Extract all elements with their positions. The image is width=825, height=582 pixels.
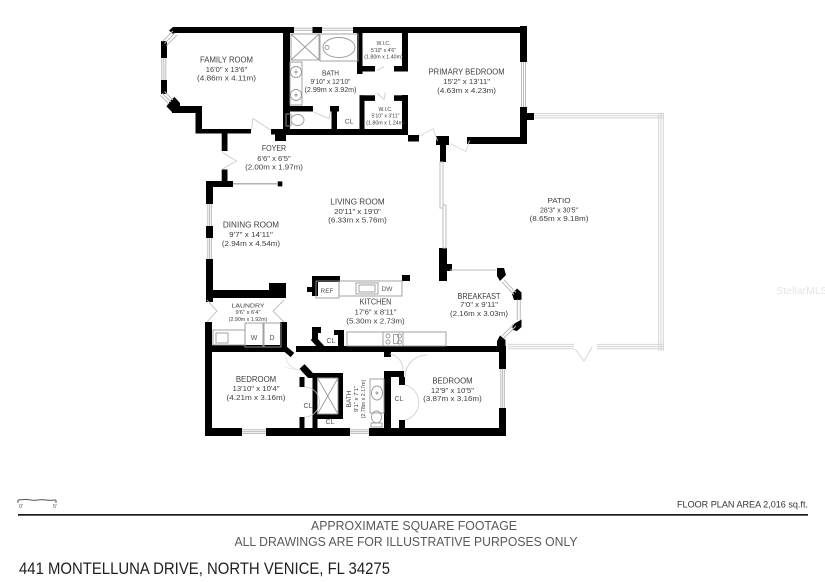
svg-text:CL: CL [395,396,404,403]
svg-text:7'0" x 9'11": 7'0" x 9'11" [460,300,498,309]
svg-text:9'1" x 7'1": 9'1" x 7'1" [354,386,360,412]
svg-text:APPROXIMATE SQUARE FOOTAGE: APPROXIMATE SQUARE FOOTAGE [311,519,517,533]
svg-text:W.I.C.: W.I.C. [377,41,391,47]
svg-text:KITCHEN: KITCHEN [360,296,392,306]
svg-text:DINING ROOM: DINING ROOM [223,219,279,229]
svg-text:LAUNDRY: LAUNDRY [232,304,265,310]
svg-text:REF: REF [321,288,334,295]
svg-text:FAMILY ROOM: FAMILY ROOM [200,55,253,65]
svg-text:BEDROOM: BEDROOM [236,374,276,384]
svg-text:(1.80m x 1.24m): (1.80m x 1.24m) [366,121,405,127]
svg-text:5'10" x 4'6": 5'10" x 4'6" [371,48,396,54]
svg-text:(2.16m x 3.03m): (2.16m x 3.03m) [450,309,508,318]
svg-text:FLOOR PLAN AREA 2,016 sq.ft.: FLOOR PLAN AREA 2,016 sq.ft. [677,500,808,510]
svg-text:CL: CL [304,403,313,410]
svg-text:16'0" x 13'6": 16'0" x 13'6" [206,65,248,74]
svg-text:(1.80m x 1.40m): (1.80m x 1.40m) [364,55,403,61]
svg-text:CL: CL [326,419,335,426]
svg-text:20'11" x 19'0": 20'11" x 19'0" [334,207,381,216]
svg-text:LIVING ROOM: LIVING ROOM [330,197,384,207]
svg-text:DW: DW [382,286,394,293]
svg-text:17'6" x 8'11": 17'6" x 8'11" [355,308,397,317]
svg-text:CL: CL [327,338,336,345]
svg-text:9'7" x 14'11": 9'7" x 14'11" [229,230,273,239]
svg-text:(2.90m x 1.92m): (2.90m x 1.92m) [229,317,268,323]
svg-text:(4.21m x 3.16m): (4.21m x 3.16m) [227,393,286,402]
svg-text:W.I.C.: W.I.C. [379,107,393,113]
svg-text:13'10" x 10'4": 13'10" x 10'4" [233,384,280,393]
svg-text:W: W [251,335,258,342]
svg-text:28'3" x 30'5": 28'3" x 30'5" [540,208,579,215]
svg-text:D: D [269,335,274,342]
svg-text:FOYER: FOYER [262,143,286,153]
svg-text:(4.86m x 4.11m): (4.86m x 4.11m) [197,74,256,83]
svg-text:(8.65m x 9.18m): (8.65m x 9.18m) [530,216,589,223]
svg-text:(2.99m x 3.92m): (2.99m x 3.92m) [305,85,357,94]
svg-text:PATIO: PATIO [548,196,571,205]
svg-text:BATH: BATH [346,391,353,408]
svg-text:BATH: BATH [322,68,339,77]
svg-text:441 MONTELLUNA DRIVE, NORTH VE: 441 MONTELLUNA DRIVE, NORTH VENICE, FL 3… [19,559,390,578]
svg-text:(2.94m x 4.54m): (2.94m x 4.54m) [222,239,280,248]
svg-text:StellarMLS: StellarMLS [776,285,825,297]
svg-text:BEDROOM: BEDROOM [432,376,472,386]
svg-text:0': 0' [19,504,23,510]
svg-text:(2.78m x 2.17m): (2.78m x 2.17m) [361,380,367,419]
svg-text:ALL DRAWINGS ARE FOR ILLUSTRAT: ALL DRAWINGS ARE FOR ILLUSTRATIVE PURPOS… [235,535,579,549]
svg-text:(5.30m x 2.73m): (5.30m x 2.73m) [346,317,404,326]
svg-text:(2.00m x 1.97m): (2.00m x 1.97m) [245,163,303,172]
svg-text:9'6" x 6'4": 9'6" x 6'4" [236,310,261,316]
svg-text:(6.33m x 5.76m): (6.33m x 5.76m) [328,216,387,225]
svg-text:15'2" x 13'11": 15'2" x 13'11" [443,77,490,86]
svg-text:(4.63m x 4.23m): (4.63m x 4.23m) [437,86,496,95]
svg-text:CL: CL [345,119,354,126]
svg-text:5': 5' [53,504,57,510]
svg-text:(3.87m x 3.16m): (3.87m x 3.16m) [423,394,482,403]
svg-text:5'10" x 3'11": 5'10" x 3'11" [372,114,400,120]
svg-text:PRIMARY BEDROOM: PRIMARY BEDROOM [429,67,505,77]
